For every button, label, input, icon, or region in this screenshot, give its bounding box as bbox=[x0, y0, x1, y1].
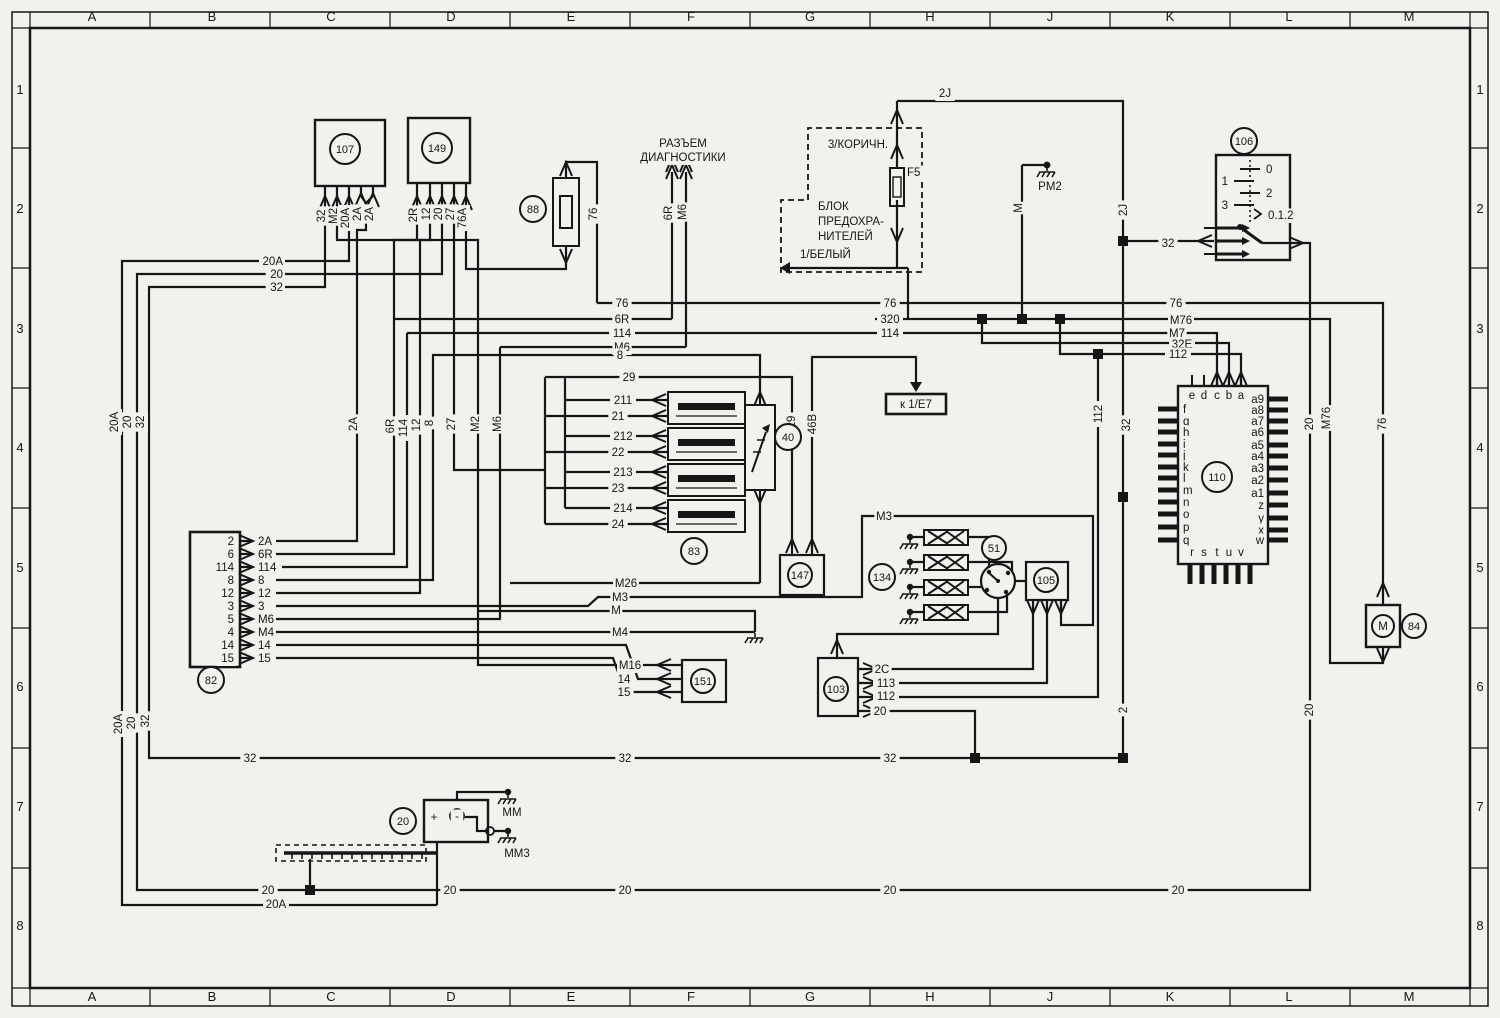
svg-text:F5: F5 bbox=[907, 167, 920, 179]
svg-text:3/КОРИЧН.: 3/КОРИЧН. bbox=[828, 139, 888, 151]
svg-text:-: - bbox=[455, 811, 459, 823]
svg-text:6R: 6R bbox=[615, 314, 630, 326]
component-106-switch bbox=[1204, 155, 1290, 260]
svg-text:113: 113 bbox=[877, 678, 895, 690]
wire-label: 3 bbox=[256, 600, 269, 615]
svg-text:15: 15 bbox=[618, 687, 631, 699]
svg-text:20: 20 bbox=[1172, 885, 1185, 897]
wire-label: 76 bbox=[880, 297, 899, 312]
svg-text:32: 32 bbox=[884, 753, 897, 765]
wire-label: 0 bbox=[1264, 163, 1277, 178]
wire-label: 2J bbox=[935, 87, 954, 102]
svg-text:2: 2 bbox=[1266, 188, 1272, 200]
wire-label: 76 bbox=[587, 204, 602, 223]
component-ref-106: 106 bbox=[1231, 128, 1257, 154]
grid-col-label: A bbox=[88, 989, 97, 1004]
wire-label: 3/КОРИЧН. bbox=[825, 138, 891, 153]
grid-row-label: 4 bbox=[1476, 440, 1483, 455]
wire-label: M76 bbox=[1168, 314, 1194, 329]
wire-label: 0.1.2 bbox=[1266, 209, 1305, 224]
component-ref-147: 147 bbox=[788, 563, 812, 587]
wire-label: 320 bbox=[877, 313, 903, 328]
svg-text:h: h bbox=[1183, 427, 1189, 439]
svg-text:M26: M26 bbox=[615, 578, 637, 590]
component-ref-103: 103 bbox=[824, 677, 848, 701]
injector-box bbox=[656, 428, 745, 460]
svg-text:M2: M2 bbox=[328, 208, 340, 224]
junction-square bbox=[1017, 314, 1027, 324]
injector-box bbox=[656, 500, 745, 532]
svg-text:b: b bbox=[1226, 390, 1232, 402]
svg-text:20: 20 bbox=[262, 885, 275, 897]
grid-col-label: H bbox=[925, 989, 934, 1004]
wire-label: 20 bbox=[1303, 414, 1318, 433]
grid-row-label: 7 bbox=[1476, 799, 1483, 814]
wire-label: a2 bbox=[1247, 474, 1266, 489]
svg-text:105: 105 bbox=[1037, 575, 1055, 587]
svg-text:j: j bbox=[1182, 450, 1186, 462]
svg-text:12: 12 bbox=[258, 588, 271, 600]
wire-label: к 1/Е7 bbox=[893, 398, 939, 413]
svg-text:a2: a2 bbox=[1251, 475, 1264, 487]
svg-text:w: w bbox=[1255, 535, 1265, 547]
svg-text:3: 3 bbox=[228, 601, 234, 613]
wires bbox=[122, 101, 1383, 905]
svg-text:20: 20 bbox=[1304, 418, 1316, 431]
svg-text:M76: M76 bbox=[1321, 407, 1333, 429]
grid-row-label: 6 bbox=[1476, 679, 1483, 694]
wire-injector-feeds bbox=[545, 377, 656, 524]
wire-label: M4 bbox=[256, 626, 275, 641]
svg-text:MM3: MM3 bbox=[504, 848, 530, 860]
wire-label: 21 bbox=[608, 410, 627, 425]
grid-col-label: L bbox=[1285, 989, 1292, 1004]
svg-text:8: 8 bbox=[228, 575, 234, 587]
wire-net-114-M7 bbox=[276, 333, 1217, 567]
component-83-injectors bbox=[656, 392, 745, 532]
svg-text:32: 32 bbox=[135, 416, 147, 429]
wire-label: 5 bbox=[223, 613, 236, 628]
grid-col-label: J bbox=[1047, 989, 1054, 1004]
svg-text:6: 6 bbox=[228, 549, 234, 561]
wire-label: 32 bbox=[139, 711, 154, 730]
svg-text:32: 32 bbox=[244, 753, 257, 765]
svg-text:29: 29 bbox=[623, 372, 636, 384]
svg-text:a1: a1 bbox=[1251, 488, 1264, 500]
component-ref-83: 83 bbox=[681, 538, 707, 564]
wiring-diagram-page: AABBCCDDEEFFGGHHJJKKLLMM1122334455667788 bbox=[0, 0, 1500, 1018]
wire-label: + bbox=[428, 811, 441, 826]
svg-text:211: 211 bbox=[614, 395, 632, 407]
grid-row-label: 8 bbox=[16, 918, 23, 933]
svg-text:M3: M3 bbox=[876, 511, 892, 523]
svg-text:2: 2 bbox=[228, 536, 234, 548]
svg-text:212: 212 bbox=[613, 431, 632, 443]
wire-label: 20 bbox=[615, 884, 634, 899]
svg-text:20: 20 bbox=[122, 416, 134, 429]
svg-text:214: 214 bbox=[613, 503, 633, 515]
component-ref-134: 134 bbox=[869, 564, 895, 590]
svg-text:M4: M4 bbox=[612, 627, 629, 639]
svg-text:РАЗЪЕМ: РАЗЪЕМ bbox=[659, 138, 707, 150]
wire-label: НИТЕЛЕЙ bbox=[816, 230, 873, 245]
svg-text:27: 27 bbox=[445, 208, 457, 221]
svg-text:21: 21 bbox=[612, 411, 625, 423]
wire-label: 2J bbox=[1117, 200, 1132, 219]
wire-label: 6R bbox=[662, 203, 677, 222]
svg-text:32: 32 bbox=[1162, 238, 1175, 250]
svg-text:M3: M3 bbox=[612, 592, 628, 604]
wire-label: c bbox=[1211, 389, 1224, 404]
grid-col-label: D bbox=[446, 989, 455, 1004]
grid-col-label: B bbox=[208, 9, 217, 24]
svg-text:ПРЕДОХРА-: ПРЕДОХРА- bbox=[818, 216, 884, 228]
wire-net-M-M4 bbox=[276, 611, 755, 632]
wire-label: F5 bbox=[905, 166, 924, 181]
wire-label: M bbox=[1377, 620, 1390, 635]
wire-label: - bbox=[451, 810, 464, 825]
wire-label: 20A bbox=[108, 409, 123, 435]
svg-text:20: 20 bbox=[884, 885, 897, 897]
wire-label: 1 bbox=[1217, 175, 1230, 190]
svg-text:22: 22 bbox=[612, 447, 625, 459]
wiring-diagram: AABBCCDDEEFFGGHHJJKKLLMM1122334455667788 bbox=[0, 0, 1500, 1018]
wire-label: 112 bbox=[1165, 348, 1191, 363]
junction-square bbox=[1093, 349, 1103, 359]
svg-text:20A: 20A bbox=[266, 899, 287, 911]
svg-text:6R: 6R bbox=[385, 419, 397, 434]
component-ref-151: 151 bbox=[691, 669, 715, 693]
junction-dots bbox=[1044, 162, 1050, 168]
component-ref-84: 84 bbox=[1402, 614, 1426, 638]
svg-text:M76: M76 bbox=[1170, 315, 1192, 327]
svg-text:6R: 6R bbox=[258, 549, 273, 561]
wire-label: PM2 bbox=[1037, 180, 1063, 195]
grid-tick-marks bbox=[12, 12, 1488, 1006]
wire-label: 8 bbox=[423, 417, 438, 430]
svg-text:2A: 2A bbox=[258, 536, 272, 548]
spark-plug-box bbox=[900, 580, 968, 599]
wire-label: 114 bbox=[877, 327, 903, 342]
svg-text:a4: a4 bbox=[1251, 451, 1264, 463]
svg-text:a3: a3 bbox=[1251, 463, 1264, 475]
svg-text:76: 76 bbox=[588, 208, 600, 221]
svg-text:20: 20 bbox=[270, 269, 283, 281]
svg-text:103: 103 bbox=[827, 684, 845, 696]
svg-text:83: 83 bbox=[688, 546, 700, 558]
svg-text:2: 2 bbox=[1118, 707, 1130, 713]
svg-text:32: 32 bbox=[140, 715, 152, 728]
svg-text:ДИАГНОСТИКИ: ДИАГНОСТИКИ bbox=[640, 152, 725, 164]
spark-plug-box bbox=[900, 530, 968, 549]
component-ref-20: 20 bbox=[390, 808, 416, 834]
svg-text:8: 8 bbox=[617, 350, 623, 362]
svg-text:M: M bbox=[1013, 203, 1025, 213]
junction-square bbox=[305, 885, 315, 895]
wire-label: 27 bbox=[445, 414, 460, 433]
svg-text:20A: 20A bbox=[109, 411, 121, 432]
svg-text:149: 149 bbox=[428, 143, 446, 155]
wire-label: e bbox=[1186, 389, 1199, 404]
svg-text:14: 14 bbox=[618, 674, 631, 686]
svg-text:32: 32 bbox=[1121, 419, 1133, 432]
wire-label: 6 bbox=[223, 548, 236, 563]
svg-text:c: c bbox=[1214, 390, 1220, 402]
svg-text:l: l bbox=[1183, 473, 1186, 485]
wire-label: 6R bbox=[612, 313, 631, 328]
engine-ground-strip bbox=[276, 845, 437, 861]
wire-label: 76 bbox=[1166, 297, 1185, 312]
svg-text:M6: M6 bbox=[677, 204, 689, 220]
svg-text:MM: MM bbox=[502, 807, 521, 819]
grid-row-label: 2 bbox=[1476, 201, 1483, 216]
grid-col-label: H bbox=[925, 9, 934, 24]
spark-plug-box bbox=[900, 555, 968, 574]
wire-label: MM bbox=[502, 806, 521, 821]
grid-col-label: F bbox=[687, 989, 695, 1004]
wire-label: M6 bbox=[676, 202, 691, 221]
component-51-distributor bbox=[981, 564, 1015, 598]
svg-text:20A: 20A bbox=[263, 256, 284, 268]
component-ref-107: 107 bbox=[330, 134, 360, 164]
svg-text:20: 20 bbox=[126, 717, 138, 730]
component-shapes bbox=[190, 110, 1400, 895]
wire-label: 8 bbox=[614, 349, 627, 364]
wire-label: 112 bbox=[1092, 401, 1107, 427]
grid-col-label: A bbox=[88, 9, 97, 24]
svg-text:2R: 2R bbox=[408, 208, 420, 223]
svg-text:23: 23 bbox=[612, 483, 625, 495]
svg-text:r: r bbox=[1190, 547, 1194, 559]
wire-label: 114 bbox=[210, 561, 236, 576]
svg-text:a: a bbox=[1238, 390, 1245, 402]
grid-col-label: C bbox=[326, 9, 335, 24]
wire-label: 2A bbox=[347, 414, 362, 433]
wire-label: 32 bbox=[134, 412, 149, 431]
grid-col-label: L bbox=[1285, 9, 1292, 24]
wire-label: 12 bbox=[217, 587, 236, 602]
wire-32-to-switch bbox=[1123, 241, 1290, 243]
wire-label: M16 bbox=[617, 659, 643, 674]
wire-label: 20 bbox=[266, 268, 285, 283]
svg-text:14: 14 bbox=[258, 640, 271, 652]
svg-text:3: 3 bbox=[1222, 200, 1228, 212]
wire-label: 12 bbox=[410, 415, 425, 434]
junction-dot bbox=[1044, 162, 1050, 168]
svg-text:M: M bbox=[1378, 621, 1388, 633]
wire-label: 2 bbox=[1264, 187, 1277, 202]
svg-text:82: 82 bbox=[205, 675, 217, 687]
svg-text:M16: M16 bbox=[619, 660, 641, 672]
ground-icon bbox=[900, 539, 918, 549]
wire-label: 2C bbox=[872, 663, 891, 678]
wire-label: 76 bbox=[612, 297, 631, 312]
svg-text:2A: 2A bbox=[364, 207, 376, 221]
grid-row-label: 1 bbox=[16, 82, 23, 97]
wire-label: 20A bbox=[259, 255, 285, 270]
wire-net-15 bbox=[276, 658, 662, 692]
wire-label: 20A bbox=[112, 711, 127, 737]
grid-col-label: D bbox=[446, 9, 455, 24]
grid-col-label: F bbox=[687, 9, 695, 24]
svg-text:n: n bbox=[1183, 497, 1189, 509]
wire-label: t bbox=[1211, 546, 1224, 561]
svg-text:114: 114 bbox=[613, 328, 632, 340]
svg-text:q: q bbox=[1183, 535, 1189, 547]
wire-label: M2 bbox=[469, 414, 484, 433]
drawing-frame bbox=[12, 12, 1488, 1006]
wire-label: 2 bbox=[223, 535, 236, 550]
wire-label: 29 bbox=[619, 371, 638, 386]
wire-label: M6 bbox=[491, 414, 506, 433]
svg-text:27: 27 bbox=[446, 418, 458, 431]
arrow-down-icon bbox=[910, 382, 922, 392]
svg-text:2A: 2A bbox=[348, 417, 360, 431]
wire-label: d bbox=[1198, 389, 1211, 404]
wire-label: M bbox=[1012, 202, 1027, 215]
wire-label: 8 bbox=[256, 574, 269, 589]
svg-text:46B: 46B bbox=[807, 413, 819, 434]
ground-icon bbox=[745, 633, 763, 643]
svg-text:114: 114 bbox=[216, 562, 235, 574]
wire-net-14 bbox=[276, 645, 662, 679]
svg-text:32: 32 bbox=[270, 282, 283, 294]
svg-text:M4: M4 bbox=[258, 627, 275, 639]
wire-label: p bbox=[1181, 521, 1194, 536]
wire-label: 112 bbox=[873, 690, 899, 705]
wire-label: a bbox=[1235, 389, 1248, 404]
svg-text:8: 8 bbox=[258, 575, 264, 587]
wire-label: 113 bbox=[873, 677, 899, 692]
wire-label: РАЗЪЕМ bbox=[659, 137, 707, 152]
grid-col-label: B bbox=[208, 989, 217, 1004]
svg-text:84: 84 bbox=[1408, 621, 1420, 633]
svg-text:20: 20 bbox=[433, 208, 445, 221]
svg-text:88: 88 bbox=[527, 204, 539, 216]
wire-label: 32 bbox=[1158, 237, 1177, 252]
wire-label: 114 bbox=[397, 415, 412, 441]
grid-row-label: 5 bbox=[1476, 560, 1483, 575]
wire-label: 1/БЕЛЫЙ bbox=[798, 248, 851, 263]
wire-label: 3 bbox=[1217, 199, 1230, 214]
svg-text:2J: 2J bbox=[939, 88, 951, 100]
wire-label: 2A bbox=[256, 535, 275, 550]
wire-label: 46B bbox=[806, 411, 821, 437]
wire-label: 3 bbox=[223, 600, 236, 615]
wire-label: 20 bbox=[125, 713, 140, 732]
svg-text:76: 76 bbox=[884, 298, 897, 310]
wire-label: 20 bbox=[121, 412, 136, 431]
svg-text:a6: a6 bbox=[1251, 427, 1264, 439]
ground-MM-icon bbox=[498, 794, 516, 804]
svg-text:134: 134 bbox=[873, 572, 891, 584]
component-134-plugs bbox=[900, 530, 968, 624]
grid-row-label: 4 bbox=[16, 440, 23, 455]
wire-label: b bbox=[1223, 389, 1236, 404]
wire-label: 15 bbox=[614, 686, 633, 701]
svg-text:M6: M6 bbox=[258, 614, 274, 626]
svg-text:1/БЕЛЫЙ: 1/БЕЛЫЙ bbox=[800, 248, 851, 261]
wire-net-29-46B bbox=[545, 357, 916, 551]
grid-row-label: 7 bbox=[16, 799, 23, 814]
grid-col-label: J bbox=[1047, 9, 1054, 24]
svg-text:112: 112 bbox=[1169, 349, 1187, 361]
svg-text:112: 112 bbox=[1093, 405, 1105, 423]
wire-battery-area bbox=[284, 792, 505, 905]
junction-square bbox=[1118, 753, 1128, 763]
svg-text:0: 0 bbox=[1266, 164, 1272, 176]
wire-label: w bbox=[1253, 534, 1266, 549]
svg-text:112: 112 bbox=[877, 691, 895, 703]
wire-label: 12 bbox=[256, 587, 275, 602]
svg-text:M: M bbox=[611, 605, 621, 617]
wire-label: 15 bbox=[217, 652, 236, 667]
svg-text:m: m bbox=[1183, 485, 1193, 497]
svg-text:12: 12 bbox=[221, 588, 234, 600]
wire-label: 6R bbox=[256, 548, 275, 563]
svg-text:o: o bbox=[1183, 509, 1189, 521]
wire-label: 20 bbox=[440, 884, 459, 899]
wire-net-2R-6R bbox=[276, 172, 672, 554]
svg-text:151: 151 bbox=[694, 676, 712, 688]
svg-text:u: u bbox=[1226, 547, 1232, 559]
wire-net-76A-fuse bbox=[466, 162, 597, 303]
wire-label: 15 bbox=[256, 652, 275, 667]
svg-text:2C: 2C bbox=[875, 664, 890, 676]
wire-label: 32 bbox=[1120, 415, 1135, 434]
svg-text:213: 213 bbox=[613, 467, 632, 479]
wire-label: M4 bbox=[610, 626, 629, 641]
grid-row-label: 6 bbox=[16, 679, 23, 694]
svg-text:e: e bbox=[1189, 390, 1195, 402]
wire-103-distributor bbox=[837, 598, 998, 658]
svg-text:20: 20 bbox=[619, 885, 632, 897]
wire-label: 4 bbox=[223, 626, 236, 641]
svg-text:15: 15 bbox=[221, 653, 234, 665]
svg-text:0.1.2: 0.1.2 bbox=[1268, 210, 1294, 222]
wire-label: 2R bbox=[407, 205, 422, 224]
wire-net-320-M76 bbox=[875, 319, 1383, 663]
svg-text:106: 106 bbox=[1235, 136, 1253, 148]
wire-label: 14 bbox=[614, 673, 633, 688]
svg-text:114: 114 bbox=[398, 418, 410, 437]
component-ref-110: 110 bbox=[1202, 462, 1232, 492]
wire-label: 22 bbox=[608, 446, 627, 461]
svg-text:d: d bbox=[1201, 390, 1207, 402]
junction-square bbox=[970, 753, 980, 763]
wire-label: 114 bbox=[609, 327, 635, 342]
svg-text:5: 5 bbox=[228, 614, 234, 626]
svg-text:M2: M2 bbox=[470, 416, 482, 432]
svg-text:107: 107 bbox=[336, 144, 354, 156]
svg-text:20: 20 bbox=[397, 816, 409, 828]
svg-text:z: z bbox=[1258, 500, 1264, 512]
wire-label: 213 bbox=[610, 466, 636, 481]
wire-label: 211 bbox=[610, 394, 636, 409]
svg-text:20: 20 bbox=[444, 885, 457, 897]
wire-label: 20A bbox=[263, 898, 289, 913]
wire-label: z bbox=[1253, 499, 1266, 514]
svg-text:147: 147 bbox=[791, 570, 809, 582]
component-40-sensor bbox=[745, 405, 775, 490]
wire-label: 212 bbox=[610, 430, 636, 445]
wire-label: 32 bbox=[615, 752, 634, 767]
svg-text:20A: 20A bbox=[113, 713, 125, 734]
wire-net-20A bbox=[122, 196, 437, 905]
wire-labels: 32M220A2A2A2R12202776A766RM6M2J20A20322A… bbox=[108, 87, 1391, 913]
component-88-fuse bbox=[553, 178, 579, 246]
svg-text:32: 32 bbox=[619, 753, 632, 765]
